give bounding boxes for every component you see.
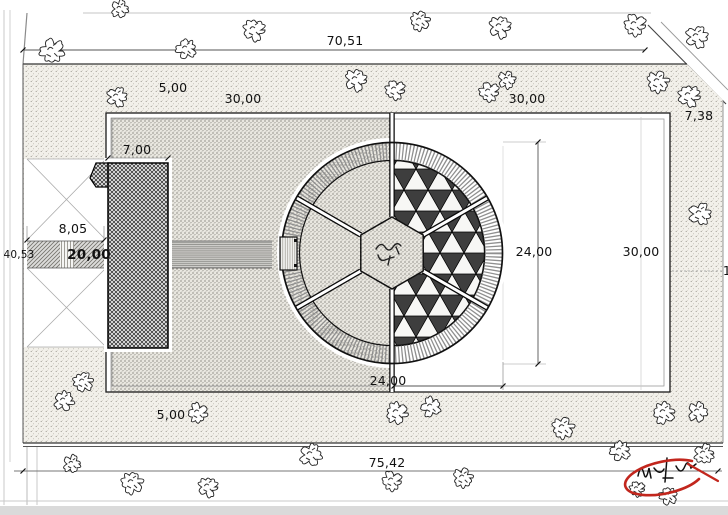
dim-chamfer: 7,38 [676, 109, 722, 123]
dim-bottom-width: 75,42 [364, 456, 410, 470]
tree-symbol [243, 20, 265, 42]
dim-square-right-top: 30,00 [504, 92, 550, 106]
dim-square-left: 30,00 [220, 92, 266, 106]
tree-symbol [175, 39, 196, 59]
dim-edge-partial: 1 [722, 264, 728, 278]
tree-symbol [489, 17, 511, 39]
tree-symbol [121, 473, 144, 496]
tree-symbol [112, 0, 129, 18]
tree-symbol [624, 14, 646, 37]
dim-band-bottom: 5,00 [148, 408, 194, 422]
tree-symbol [64, 454, 81, 472]
dim-dome-vertical: 24,00 [511, 245, 557, 259]
site-plan-sheet: 70,51 5,00 30,00 30,00 7,38 7,00 8,05 40… [0, 0, 728, 515]
dim-right-width: 30,00 [618, 245, 664, 259]
dim-building-width: 7,00 [114, 143, 160, 157]
dome-entrance-vestibule [280, 237, 297, 270]
tree-symbol [198, 478, 218, 498]
tree-symbol [411, 11, 431, 32]
dim-band-top: 5,00 [150, 81, 196, 95]
tree-symbol [382, 471, 402, 492]
building-entrance-flag [90, 163, 110, 187]
dim-road-left: 40,53 [0, 250, 42, 262]
dim-entry-width: 8,05 [50, 222, 96, 236]
dim-dome-horizontal: 24,00 [365, 374, 411, 388]
dim-path-length: 20,00 [66, 248, 112, 263]
tree-symbol [686, 27, 709, 49]
dim-top-width: 70,51 [322, 34, 368, 48]
sheet-edge-strip [0, 506, 728, 515]
